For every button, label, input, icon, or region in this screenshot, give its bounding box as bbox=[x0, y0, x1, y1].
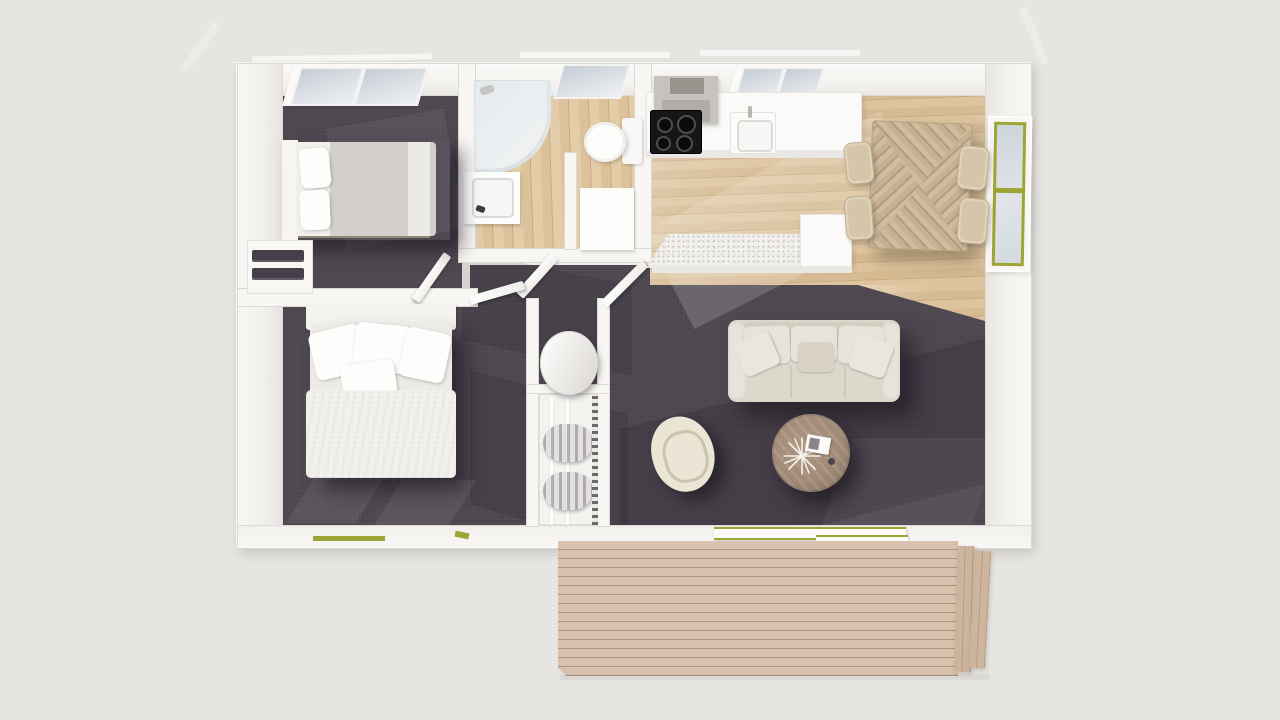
hood-vent bbox=[670, 78, 704, 94]
cooktop bbox=[650, 110, 702, 154]
burner bbox=[676, 135, 693, 152]
roof-ridge bbox=[700, 50, 860, 56]
kitchen-sink-basin bbox=[737, 120, 773, 152]
bedroom2-duvet bbox=[306, 390, 456, 478]
dining-chair bbox=[956, 145, 990, 192]
burner bbox=[677, 115, 696, 134]
wardrobe-clothes bbox=[543, 472, 593, 510]
window-sill-bedroom2 bbox=[313, 536, 385, 541]
armchair-seat bbox=[658, 426, 713, 487]
pillow bbox=[299, 189, 331, 231]
coffee-table bbox=[772, 414, 850, 492]
wall-hall-west bbox=[526, 298, 539, 527]
sofa-center-pillow bbox=[798, 342, 834, 372]
bathroom-cabinet bbox=[580, 188, 634, 250]
skylight-glass bbox=[553, 64, 631, 99]
floorplan-render bbox=[0, 0, 1280, 720]
wall-hall-east bbox=[597, 298, 610, 527]
roof-ridge bbox=[252, 53, 432, 62]
roof-edge-line bbox=[180, 21, 221, 73]
coffee-table-cup bbox=[828, 458, 835, 465]
dining-chair bbox=[843, 141, 875, 186]
deck bbox=[558, 541, 958, 676]
kitchen-tap bbox=[748, 106, 752, 118]
island-bench bbox=[646, 234, 804, 268]
roof-ridge bbox=[520, 52, 670, 58]
island-cabinet bbox=[800, 214, 852, 268]
wardrobe-door-track bbox=[592, 396, 598, 525]
bedroom2-bed bbox=[310, 324, 452, 478]
bed-foot-band bbox=[408, 142, 430, 236]
bedroom1-bed bbox=[282, 140, 450, 240]
skylight-glass bbox=[353, 67, 428, 106]
toilet bbox=[584, 122, 626, 162]
folded-clothes bbox=[252, 250, 304, 262]
sofa-seam bbox=[790, 366, 792, 398]
pillow bbox=[397, 326, 452, 384]
wardrobe-clothes bbox=[543, 424, 593, 462]
sofa bbox=[728, 320, 900, 402]
sofa-seam bbox=[844, 366, 846, 398]
vanity-basin bbox=[472, 178, 514, 218]
folded-clothes bbox=[252, 268, 304, 280]
skylight-glass bbox=[289, 67, 364, 106]
book-cover-art bbox=[808, 438, 820, 451]
island-front bbox=[652, 266, 852, 273]
window-glass bbox=[992, 122, 1027, 267]
burner bbox=[656, 136, 671, 151]
burner bbox=[657, 117, 673, 133]
wall-bathroom-stub bbox=[564, 152, 577, 250]
pillow bbox=[298, 147, 332, 190]
window-green-mullion bbox=[993, 188, 1025, 194]
bedroom1-wardrobe-shelf bbox=[247, 240, 313, 294]
dining-chair bbox=[956, 197, 990, 245]
dining-chair bbox=[843, 195, 874, 241]
water-heater bbox=[540, 331, 598, 395]
roof-edge-line bbox=[1019, 7, 1049, 66]
window-east bbox=[986, 116, 1033, 273]
